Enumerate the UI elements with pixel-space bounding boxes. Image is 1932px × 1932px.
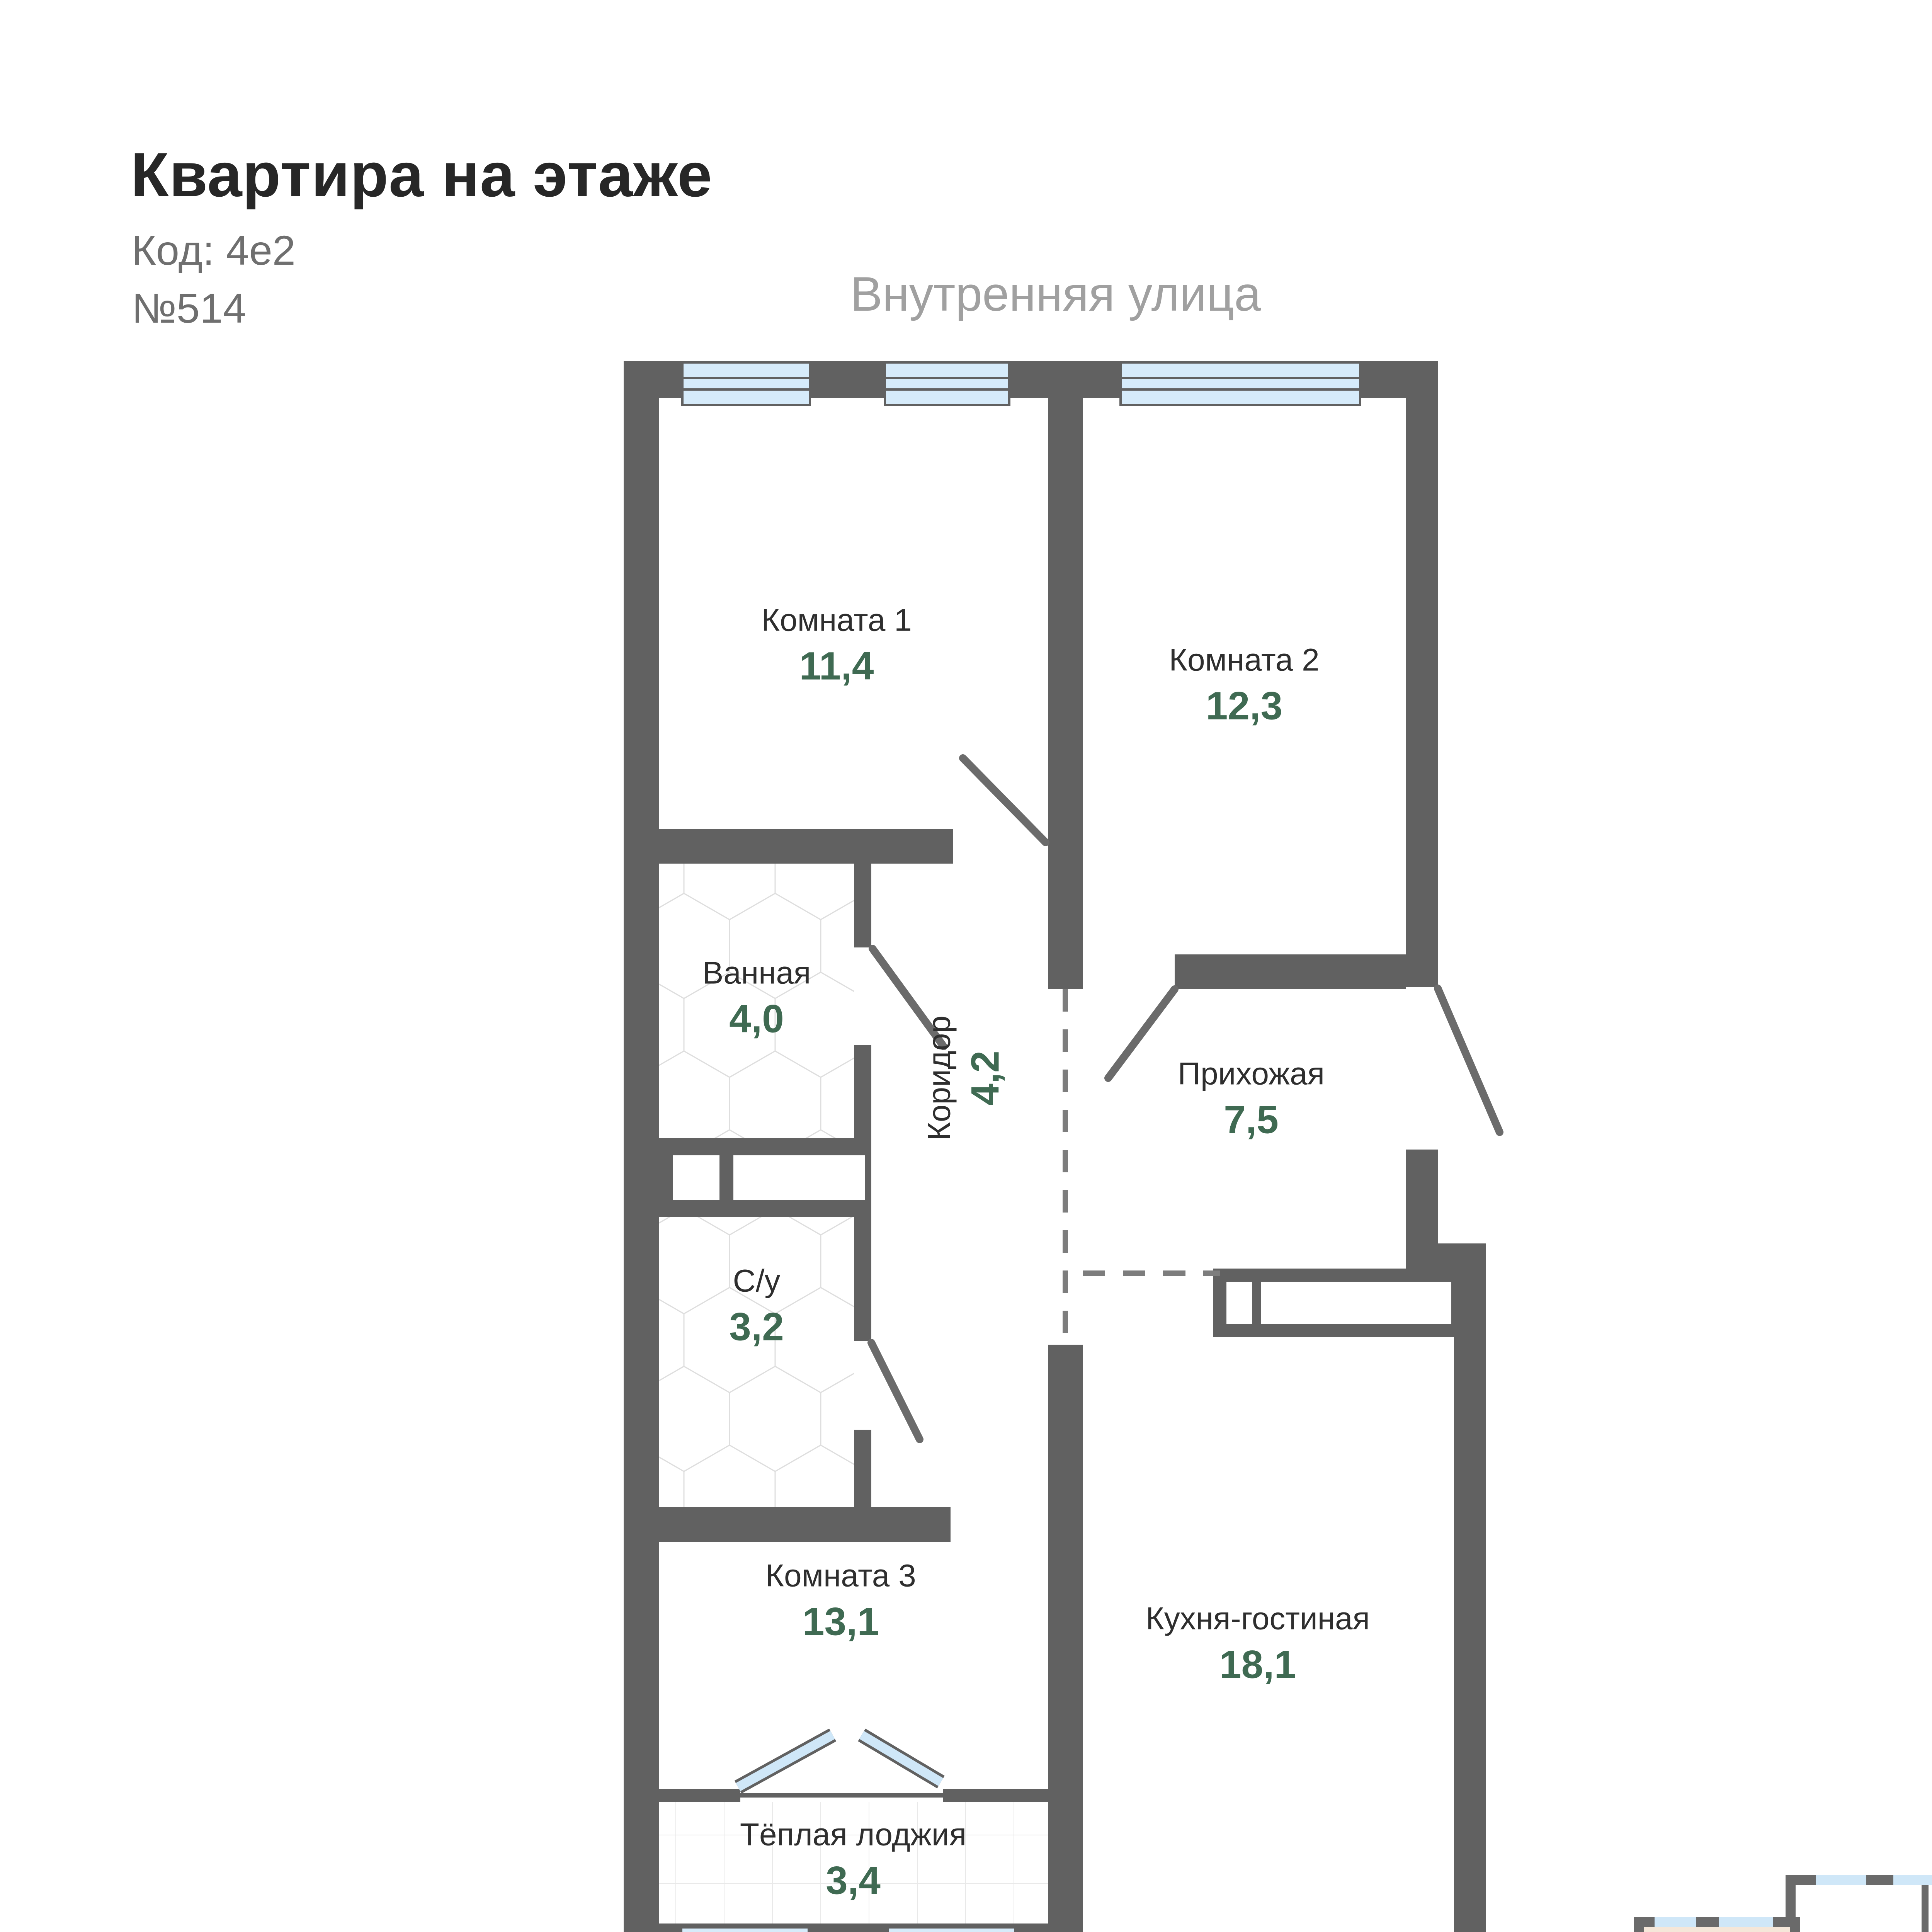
wall-room1-bath bbox=[659, 829, 953, 864]
room-area: 3,4 bbox=[740, 1855, 966, 1906]
wall-right-lower bbox=[1454, 1275, 1486, 1932]
door-swing-wc bbox=[871, 1343, 920, 1439]
wall-left bbox=[624, 361, 659, 1932]
open-boundaries bbox=[1065, 989, 1220, 1345]
hall-duct-niche bbox=[1220, 1275, 1458, 1330]
apartment-number: №514 bbox=[132, 284, 246, 332]
bath-niches bbox=[673, 1155, 865, 1200]
room-area: 13,1 bbox=[765, 1596, 916, 1647]
room-label-wc: С/у 3,2 bbox=[729, 1261, 784, 1352]
wc-tile-floor bbox=[659, 1217, 854, 1507]
door-swing-entry bbox=[1438, 988, 1500, 1132]
door-swing-room1 bbox=[963, 758, 1046, 842]
room-name: Коридор bbox=[920, 1015, 959, 1141]
room-area: 3,2 bbox=[729, 1301, 784, 1352]
window-top-3 bbox=[1121, 362, 1360, 405]
walls bbox=[624, 361, 1486, 1932]
window-top-1 bbox=[682, 362, 810, 405]
room-name: Ванная bbox=[702, 953, 811, 993]
room-name: С/у bbox=[729, 1261, 784, 1301]
window-top-2 bbox=[885, 362, 1009, 405]
room-area: 4,0 bbox=[702, 993, 811, 1044]
building-mini-plan bbox=[1639, 1875, 1932, 1932]
apartment-code: Код: 4е2 bbox=[132, 226, 296, 274]
floorplan-page: Квартира на этаже Код: 4е2 №514 В С Ю З … bbox=[0, 0, 1932, 1932]
room-label-room3: Комната 3 13,1 bbox=[765, 1556, 916, 1647]
wall-room2-hall bbox=[1175, 954, 1406, 989]
room-name: Тёплая лоджия bbox=[740, 1815, 966, 1855]
wall-wc-corridor-a bbox=[854, 1217, 871, 1341]
room-area: 12,3 bbox=[1169, 680, 1319, 731]
door-swing-room2 bbox=[1108, 989, 1175, 1078]
wall-right-upper bbox=[1406, 361, 1438, 987]
room-name: Кухня-гостиная bbox=[1146, 1599, 1370, 1639]
window-loggia-2 bbox=[888, 1927, 1015, 1932]
wall-room3-kitchen bbox=[1048, 1345, 1083, 1932]
room-area: 11,4 bbox=[761, 640, 912, 692]
wall-bath-corridor-a bbox=[854, 864, 871, 947]
room-name: Комната 3 bbox=[765, 1556, 916, 1596]
room-label-bathroom: Ванная 4,0 bbox=[702, 953, 811, 1044]
loggia-glass-doors bbox=[738, 1735, 941, 1787]
room-label-room1: Комната 1 11,4 bbox=[761, 600, 912, 691]
room-name: Комната 1 bbox=[761, 600, 912, 640]
window-loggia-1 bbox=[681, 1927, 809, 1932]
mini-outer-wall bbox=[1791, 1880, 1932, 1932]
room-area: 7,5 bbox=[1178, 1094, 1325, 1145]
room-label-hallway: Прихожая 7,5 bbox=[1178, 1054, 1325, 1145]
wall-room1-room2 bbox=[1048, 398, 1083, 989]
wall-wc-room3 bbox=[659, 1507, 951, 1542]
room-name: Комната 2 bbox=[1169, 640, 1319, 680]
room-label-loggia: Тёплая лоджия 3,4 bbox=[740, 1815, 966, 1906]
room-area: 4,2 bbox=[959, 1015, 1011, 1141]
wall-bath-corridor-b bbox=[854, 1045, 871, 1138]
room-label-corridor: Коридор 4,2 bbox=[920, 1015, 1010, 1141]
wall-entry-stub bbox=[1406, 1150, 1438, 1244]
room-label-room2: Комната 2 12,3 bbox=[1169, 640, 1319, 731]
street-label: Внутренняя улица bbox=[850, 267, 1261, 322]
page-title: Квартира на этаже bbox=[131, 139, 713, 211]
room-label-kitchen: Кухня-гостиная 18,1 bbox=[1146, 1599, 1370, 1690]
wall-wc-corridor-b bbox=[854, 1430, 871, 1507]
loggia-threshold bbox=[659, 1793, 1048, 1798]
room-name: Прихожая bbox=[1178, 1054, 1325, 1094]
room-area: 18,1 bbox=[1146, 1639, 1370, 1690]
